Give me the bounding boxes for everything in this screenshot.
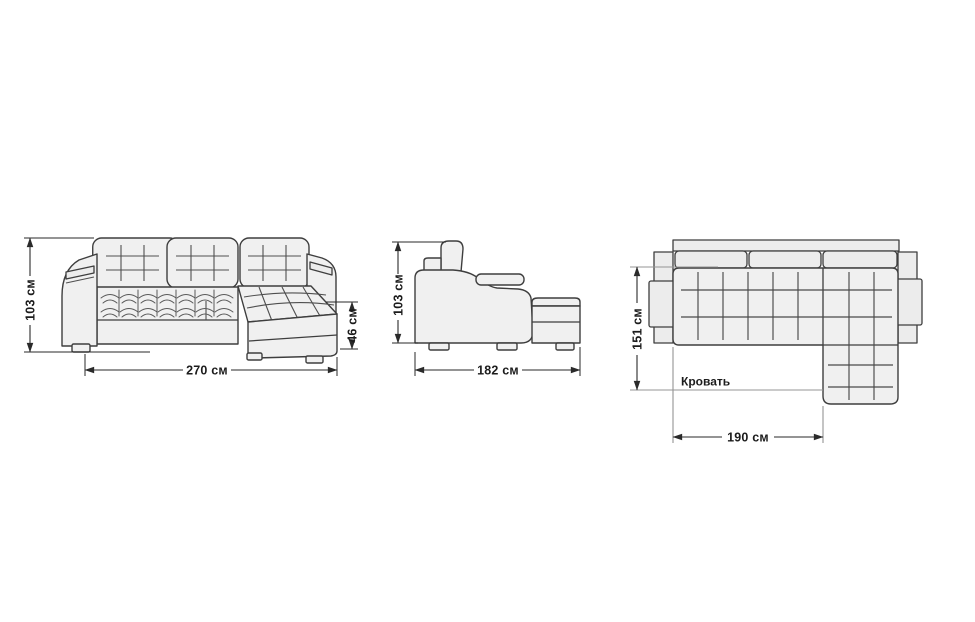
top-sleeping-width-dim-label: 151 см (631, 308, 645, 350)
sofa-dimensions-diagram: 103 см 46 см 270 см (0, 0, 975, 622)
back-cushion-middle (167, 238, 238, 288)
side-height-dim-label: 103 см (392, 274, 406, 316)
front-width-dim-label: 270 см (186, 364, 228, 378)
side-chaise-body (532, 306, 580, 343)
top-sleeping-length-dimension: 190 см (673, 431, 823, 445)
foot (247, 353, 262, 360)
seat-base (97, 287, 238, 344)
side-chaise-cushion (532, 298, 580, 306)
front-sofa-drawing (62, 238, 337, 363)
diagram-canvas: 103 см 46 см 270 см (0, 0, 975, 622)
bed-area-label: Кровать (681, 375, 730, 389)
top-sleeping-length-dim-label: 190 см (727, 431, 769, 445)
front-seat-height-dim-label: 46 см (346, 308, 360, 343)
side-armrest-pillow (476, 274, 524, 285)
top-back-cushion (675, 251, 747, 268)
front-height-dim-label: 103 см (24, 279, 38, 321)
top-armrest-left-pad (649, 281, 675, 327)
top-view: Кровать 151 см 190 см (630, 240, 922, 445)
foot (429, 343, 449, 350)
top-back-cushion (823, 251, 897, 268)
side-view: 103 см 182 см (392, 241, 581, 378)
side-headrest (441, 241, 463, 272)
side-depth-dim-label: 182 см (477, 364, 519, 378)
side-sofa-drawing (415, 241, 580, 350)
foot (72, 344, 90, 352)
top-armrest-right-pad (895, 279, 922, 325)
back-cushion-right (240, 238, 309, 288)
back-cushion-left (93, 238, 179, 288)
foot (556, 343, 574, 350)
foot (306, 356, 323, 363)
top-sleeping-width-dimension: 151 см (631, 267, 645, 390)
foot (497, 343, 517, 350)
top-back-cushion (749, 251, 821, 268)
front-view: 103 см 46 см 270 см (24, 238, 360, 378)
top-back-strip (673, 240, 899, 251)
side-depth-dimension: 182 см (415, 347, 580, 378)
